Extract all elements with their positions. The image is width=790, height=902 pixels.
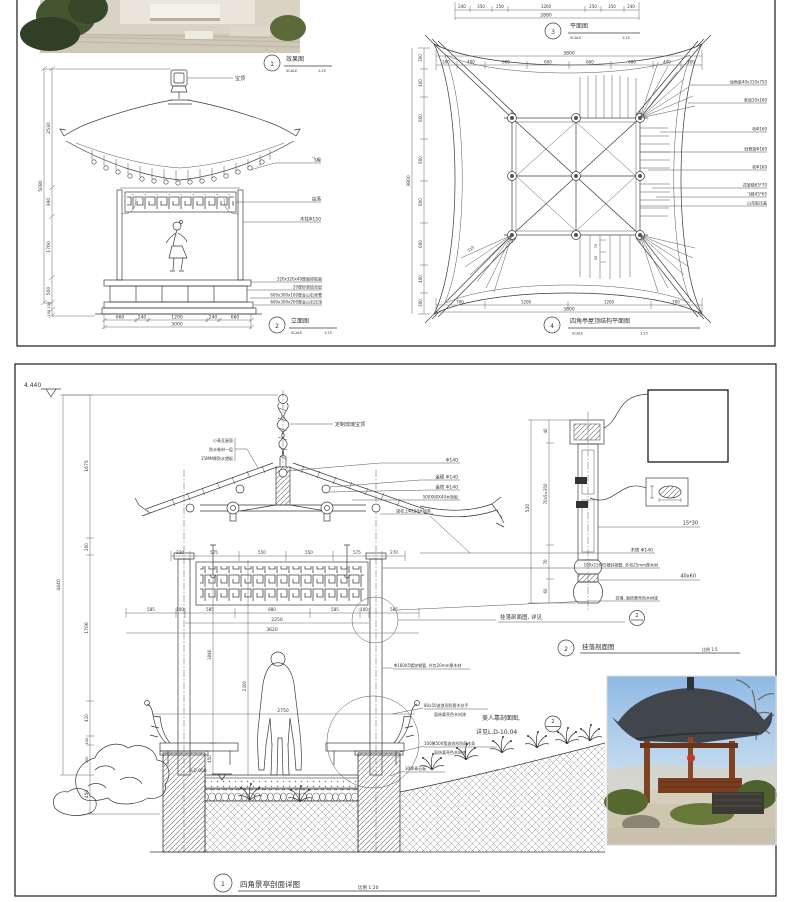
svg-text:4440: 4440 bbox=[56, 579, 62, 591]
svg-text:660: 660 bbox=[116, 315, 125, 321]
svg-text:SCALE: SCALE bbox=[291, 331, 302, 335]
svg-text:450: 450 bbox=[84, 790, 90, 799]
svg-text:240: 240 bbox=[627, 4, 635, 9]
elev-right-labels: 宝顶 飞椽 挂落 木柱Φ150 320x320x40厚面砖贴面 20厚砂浆结合层… bbox=[235, 75, 322, 305]
svg-text:250: 250 bbox=[589, 4, 597, 9]
svg-text:350: 350 bbox=[608, 4, 616, 9]
svg-text:700: 700 bbox=[672, 300, 680, 305]
svg-text:4: 4 bbox=[550, 323, 554, 330]
svg-text:面饰栗壳色木材漆: 面饰栗壳色木材漆 bbox=[434, 749, 466, 755]
roof-right-labels: 戗角梁40x310x750 老戗30x160 桁Φ160 戗脊梁Φ160 枋Φ1… bbox=[640, 79, 767, 207]
svg-text:100: 100 bbox=[360, 607, 368, 612]
finial-label: 定制琉璃宝顶 bbox=[335, 421, 365, 428]
svg-text:SCALE: SCALE bbox=[570, 36, 581, 40]
svg-text:2: 2 bbox=[635, 613, 638, 619]
svg-text:3800: 3800 bbox=[563, 307, 575, 313]
svg-text:戗脊梁Φ160: 戗脊梁Φ160 bbox=[744, 146, 767, 152]
svg-text:410: 410 bbox=[84, 714, 89, 722]
detail-2-title: 2 挂落剖面图 比例 1:5 bbox=[558, 640, 740, 656]
svg-text:防水卷材一层: 防水卷材一层 bbox=[209, 446, 233, 452]
svg-text:400: 400 bbox=[467, 60, 475, 65]
svg-text:金枋 Φ140: 金枋 Φ140 bbox=[435, 484, 458, 491]
foundation bbox=[150, 743, 605, 852]
callout-1: 1 效果图 SCALE 1:25 bbox=[264, 55, 332, 73]
elevation-drawing: 2530 390 1760 500 150 100 5080 660 240 1… bbox=[38, 66, 337, 335]
svg-text:350: 350 bbox=[85, 757, 89, 764]
svg-text:宝顶: 宝顶 bbox=[235, 75, 245, 82]
svg-text:2530: 2530 bbox=[46, 122, 52, 134]
svg-text:1675: 1675 bbox=[84, 460, 90, 472]
svg-text:2: 2 bbox=[551, 719, 554, 725]
svg-text:SCALE: SCALE bbox=[572, 332, 583, 336]
svg-text:600x300x100厚金山石坐凳: 600x300x100厚金山石坐凳 bbox=[270, 292, 322, 298]
svg-text:100: 100 bbox=[85, 738, 89, 745]
svg-text:5080: 5080 bbox=[38, 180, 44, 192]
svg-text:2250: 2250 bbox=[271, 617, 283, 623]
section-title: 1 四角景亭剖面详图 比例 1:20 bbox=[214, 874, 480, 892]
svg-text:3000: 3000 bbox=[171, 322, 183, 328]
svg-text:300: 300 bbox=[418, 54, 423, 62]
svg-text:70: 70 bbox=[543, 559, 548, 565]
svg-text:300: 300 bbox=[418, 299, 423, 307]
svg-text:100: 100 bbox=[176, 607, 184, 612]
svg-text:1:25: 1:25 bbox=[622, 36, 630, 40]
elev-bottom-dims: 660 240 1200 240 660 3000 bbox=[102, 314, 254, 329]
svg-text:老戗30x160: 老戗30x160 bbox=[744, 97, 768, 103]
svg-text:270: 270 bbox=[390, 550, 398, 555]
svg-text:4.440: 4.440 bbox=[24, 382, 41, 389]
drawing-sheet: 1 效果图 SCALE 1:25 bbox=[0, 0, 790, 902]
svg-text:240: 240 bbox=[209, 315, 218, 321]
svg-text:240: 240 bbox=[458, 4, 466, 9]
svg-text:40: 40 bbox=[543, 428, 548, 434]
svg-text:Φ140: Φ140 bbox=[446, 458, 458, 464]
svg-text:立面图: 立面图 bbox=[291, 317, 309, 325]
svg-text:240: 240 bbox=[138, 315, 147, 321]
svg-text:挂落剖面图: 挂落剖面图 bbox=[582, 642, 615, 651]
svg-text:详见L.D-10.04: 详见L.D-10.04 bbox=[476, 728, 517, 736]
svg-text:花架椽65*70: 花架椽65*70 bbox=[743, 182, 768, 188]
svg-text:600: 600 bbox=[418, 198, 423, 206]
callout-1-scale: 1:25 bbox=[318, 69, 326, 73]
section-drawing: 定制琉璃宝顶 小青瓦屋面 防水卷材一层 15MM厚防水望板 Φ140 bbox=[53, 390, 660, 892]
svg-text:150: 150 bbox=[47, 302, 51, 309]
svg-text:20厚砂浆结合层: 20厚砂浆结合层 bbox=[293, 284, 322, 290]
roof-top-dims: 3800 300 400 600 600 600 600 400 300 bbox=[436, 50, 702, 70]
svg-text:575: 575 bbox=[353, 550, 361, 555]
svg-text:550: 550 bbox=[258, 550, 266, 555]
svg-text:585: 585 bbox=[390, 607, 398, 612]
detail-2-drawing: 40 70x5=350 70 60 520 15*30 40x60 2 挂落剖面… bbox=[525, 390, 740, 656]
svg-text:400: 400 bbox=[418, 275, 423, 283]
detail-callout-box-small bbox=[646, 478, 688, 506]
svg-text:520: 520 bbox=[525, 504, 531, 513]
section-right-labels-mid: 木枋 Φ140 100x150X5镀锌钢管, 外包25mm厚木材 挂落, 面饰栗… bbox=[382, 516, 660, 626]
svg-text:70: 70 bbox=[594, 244, 598, 248]
svg-text:1200: 1200 bbox=[604, 300, 615, 305]
roof-left-labels: 小青瓦屋面 防水卷材一层 15MM厚防水望板 bbox=[201, 437, 258, 468]
svg-text:平面图: 平面图 bbox=[570, 23, 588, 30]
roof-plan-drawing: 715 70 50 3800 300 400 600 600 600 600 4… bbox=[406, 35, 767, 336]
svg-text:320x320x40厚面砖贴面: 320x320x40厚面砖贴面 bbox=[277, 276, 322, 282]
svg-text:575: 575 bbox=[210, 550, 218, 555]
svg-text:比例 1:20: 比例 1:20 bbox=[358, 884, 379, 891]
svg-text:100: 100 bbox=[47, 310, 51, 317]
svg-text:1706: 1706 bbox=[84, 622, 90, 634]
svg-text:山花板压盖: 山花板压盖 bbox=[747, 200, 767, 206]
svg-text:1200: 1200 bbox=[171, 315, 183, 321]
svg-text:250: 250 bbox=[496, 4, 504, 9]
svg-text:500: 500 bbox=[46, 287, 52, 296]
svg-text:550: 550 bbox=[305, 550, 313, 555]
section-mid-dims: 585 100 585 880 585 100 585 2250 3620 bbox=[126, 607, 419, 633]
svg-text:美人靠剖面图,: 美人靠剖面图, bbox=[482, 714, 520, 722]
svg-text:600: 600 bbox=[544, 60, 552, 65]
callout-1-scale-label: SCALE bbox=[286, 69, 297, 73]
svg-text:400: 400 bbox=[418, 79, 423, 87]
svg-text:15MM厚防水望板: 15MM厚防水望板 bbox=[201, 455, 233, 461]
pavilion-photo bbox=[604, 676, 777, 845]
detail-2-label-2: 40x60 bbox=[680, 574, 696, 580]
svg-text:木枋 Φ140: 木枋 Φ140 bbox=[630, 547, 653, 554]
svg-text:挂落: 挂落 bbox=[312, 196, 321, 203]
svg-text:2750: 2750 bbox=[277, 708, 289, 714]
svg-text:1760: 1760 bbox=[46, 241, 52, 253]
svg-text:1: 1 bbox=[221, 880, 225, 888]
svg-text:220: 220 bbox=[176, 550, 184, 555]
svg-text:1846: 1846 bbox=[207, 649, 212, 660]
svg-text:飞椽: 飞椽 bbox=[312, 157, 321, 164]
plan-dim-chain: 240 350 250 1200 250 350 240 2880 bbox=[455, 2, 639, 20]
svg-text:1:25: 1:25 bbox=[640, 332, 648, 336]
svg-text:80x50波浪形防腐木扶手: 80x50波浪形防腐木扶手 bbox=[424, 702, 469, 708]
top-panel: 1 效果图 SCALE 1:25 bbox=[16, 0, 777, 347]
svg-text:880: 880 bbox=[268, 607, 276, 612]
svg-text:585: 585 bbox=[147, 607, 155, 612]
bottom-panel: 4.440 定制琉璃宝顶 bbox=[14, 363, 777, 897]
svg-text:50: 50 bbox=[594, 256, 598, 260]
svg-text:600: 600 bbox=[418, 156, 423, 164]
svg-text:3620: 3620 bbox=[266, 627, 278, 633]
svg-text:2300: 2300 bbox=[242, 680, 247, 691]
gualuo-detail-circle bbox=[352, 597, 398, 643]
svg-text:3800: 3800 bbox=[406, 175, 412, 187]
svg-text:400: 400 bbox=[663, 60, 671, 65]
svg-text:枋Φ160: 枋Φ160 bbox=[752, 164, 767, 170]
svg-text:300: 300 bbox=[442, 60, 450, 65]
svg-text:600x300x200厚金山石压顶: 600x300x200厚金山石压顶 bbox=[270, 299, 322, 305]
svg-text:Φ160X5镀锌钢管, 外包20mm厚木材: Φ160X5镀锌钢管, 外包20mm厚木材 bbox=[394, 662, 462, 668]
svg-text:3: 3 bbox=[551, 29, 555, 36]
callout-3: 3 平面图 SCALE 1:25 bbox=[545, 23, 640, 40]
detail-2-dims: 40 70x5=350 70 60 520 bbox=[525, 420, 576, 603]
callout-4: 4 四角亭屋顶结构平面图 SCALE 1:25 bbox=[544, 317, 700, 336]
svg-text:2: 2 bbox=[275, 323, 279, 330]
svg-text:200: 200 bbox=[84, 543, 89, 551]
roof-left-dims: 300 400 600 600 600 600 400 300 3800 bbox=[406, 48, 430, 314]
callout-1-num: 1 bbox=[270, 61, 274, 68]
svg-text:600: 600 bbox=[418, 240, 423, 248]
detail-2-label-1: 15*30 bbox=[683, 521, 698, 527]
svg-text:390: 390 bbox=[46, 198, 52, 207]
svg-text:挂落, 面饰栗壳色木材漆: 挂落, 面饰栗壳色木材漆 bbox=[615, 595, 658, 601]
base-platform bbox=[95, 280, 262, 314]
rocks bbox=[53, 744, 169, 815]
svg-text:戗角梁40x310x750: 戗角梁40x310x750 bbox=[730, 79, 768, 85]
detail-callout-box-large bbox=[648, 390, 728, 462]
svg-text:600: 600 bbox=[586, 60, 594, 65]
svg-text:面饰栗壳色木材漆: 面饰栗壳色木材漆 bbox=[434, 711, 466, 717]
svg-text:梁枋上Φ120木檩条: 梁枋上Φ120木檩条 bbox=[396, 508, 431, 514]
svg-text:2: 2 bbox=[564, 646, 568, 653]
svg-text:585: 585 bbox=[331, 607, 339, 612]
svg-text:桁Φ160: 桁Φ160 bbox=[752, 126, 767, 132]
svg-text:2880: 2880 bbox=[540, 13, 552, 19]
svg-text:飞椽45*65: 飞椽45*65 bbox=[747, 191, 768, 197]
svg-text:比例 1:5: 比例 1:5 bbox=[702, 646, 718, 652]
svg-text:1200: 1200 bbox=[541, 4, 552, 9]
svg-text:700: 700 bbox=[456, 300, 464, 305]
eave-beads bbox=[92, 160, 264, 185]
svg-text:350: 350 bbox=[477, 4, 485, 9]
svg-text:四角景亭剖面详图: 四角景亭剖面详图 bbox=[240, 879, 300, 889]
svg-text:四角亭屋顶结构平面图: 四角亭屋顶结构平面图 bbox=[570, 317, 630, 325]
callout-1-title: 效果图 bbox=[286, 55, 304, 63]
svg-text:金檩 Φ140: 金檩 Φ140 bbox=[435, 474, 458, 481]
svg-text:100厚500宽波浪形防腐木条: 100厚500宽波浪形防腐木条 bbox=[424, 740, 475, 746]
bench-labels: Φ160X5镀锌钢管, 外包20mm厚木材 80x50波浪形防腐木扶手 面饰栗壳… bbox=[382, 662, 561, 776]
svg-text:70x5=350: 70x5=350 bbox=[543, 483, 548, 504]
svg-text:60: 60 bbox=[543, 588, 548, 594]
svg-text:500X60X40木垫板: 500X60X40木垫板 bbox=[423, 494, 458, 500]
svg-text:660: 660 bbox=[231, 315, 240, 321]
svg-text:30厚青石板: 30厚青石板 bbox=[405, 765, 426, 771]
svg-text:300: 300 bbox=[687, 60, 695, 65]
svg-text:木柱Φ150: 木柱Φ150 bbox=[300, 216, 321, 223]
render-photo bbox=[20, 0, 306, 53]
svg-text:600: 600 bbox=[418, 114, 423, 122]
svg-text:100x150X5镀锌钢管, 外包25mm厚木材: 100x150X5镀锌钢管, 外包25mm厚木材 bbox=[584, 562, 658, 568]
callout-2: 2 立面图 SCALE 1:25 bbox=[269, 317, 337, 335]
svg-text:450: 450 bbox=[207, 755, 212, 763]
svg-text:3800: 3800 bbox=[563, 51, 575, 57]
svg-text:1200: 1200 bbox=[521, 300, 532, 305]
svg-text:小青瓦屋面: 小青瓦屋面 bbox=[213, 437, 233, 443]
section-left-dims: 1675 200 1706 410 100 350 450 4440 bbox=[56, 395, 160, 814]
svg-text:600: 600 bbox=[628, 60, 636, 65]
svg-text:600: 600 bbox=[502, 60, 510, 65]
svg-text:挂落剖面图, 详见: 挂落剖面图, 详见 bbox=[500, 613, 542, 621]
person-figure bbox=[166, 221, 187, 272]
svg-text:1:25: 1:25 bbox=[324, 331, 332, 335]
